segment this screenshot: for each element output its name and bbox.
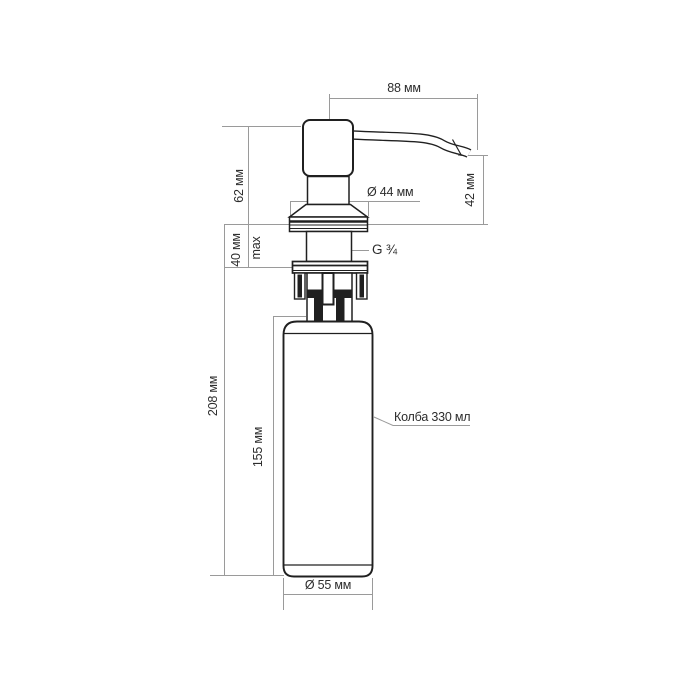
thread-size-label: G ¾	[372, 242, 397, 257]
dim-flask-diameter-label: Ø 55 мм	[290, 578, 366, 593]
dim-flask-height-label: 155 мм	[251, 417, 267, 477]
spout	[352, 135, 469, 156]
flask-body	[284, 322, 373, 577]
pump-neck	[308, 177, 350, 205]
center-tab	[323, 273, 334, 305]
dim-under-counter-label: 208 мм	[206, 366, 222, 426]
dim-flange-diameter-label-text: Ø 44 мм	[367, 185, 413, 200]
dim-mount-thickness-label: 40 мм	[229, 220, 245, 280]
dim-spout-length-label: 88 мм	[375, 81, 433, 96]
dim-mount-thickness-note-label: max	[249, 218, 265, 278]
dispenser-diagram-svg	[0, 0, 700, 700]
flask-volume-note-label: Колба 330 мл	[394, 410, 470, 425]
pump-head	[303, 120, 353, 176]
technical-drawing-canvas: 88 мм 62 мм 42 мм Ø 44 мм 40 мм max G ¾ …	[0, 0, 700, 700]
lock-nut	[293, 262, 368, 274]
dim-spout-drop-label: 42 мм	[463, 160, 479, 220]
dim-head-height-label: 62 мм	[232, 156, 248, 216]
thread-shank	[307, 232, 352, 262]
flange	[290, 205, 368, 232]
